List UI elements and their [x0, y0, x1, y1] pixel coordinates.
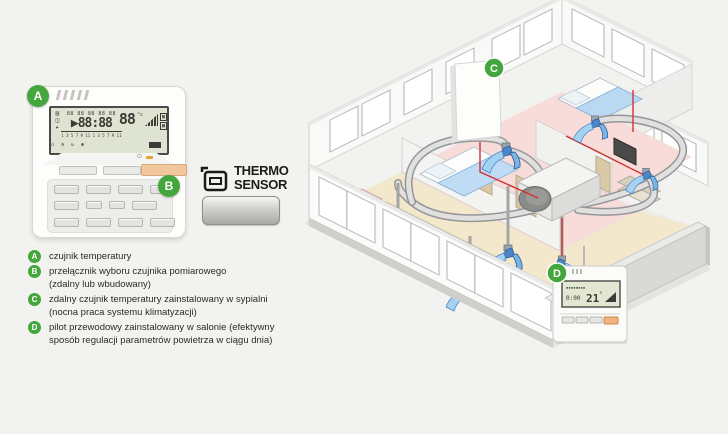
device-button — [109, 201, 125, 209]
device-button — [118, 185, 143, 194]
lcd-black-box — [149, 142, 161, 148]
lcd-temp-unit: °c — [137, 112, 143, 153]
legend-text: (zdalny lub wbudowany) — [49, 278, 226, 292]
lcd-temperature: 88 — [119, 112, 135, 153]
device-onoff-button — [141, 164, 187, 176]
device-button — [103, 166, 141, 175]
legend-text: zdalny czujnik temperatury zainstalowany… — [49, 293, 268, 307]
badge-a: A — [27, 85, 49, 107]
device-button — [59, 166, 97, 175]
lcd-mode-icon: ▩ — [160, 122, 167, 130]
device-button — [86, 185, 111, 194]
device-button — [54, 218, 79, 227]
svg-text:0:00: 0:00 — [566, 295, 581, 302]
legend: A czujnik temperatury B przełącznik wybo… — [28, 250, 328, 349]
power-led — [146, 156, 153, 159]
device-button — [118, 218, 143, 227]
device-button — [86, 218, 111, 227]
legend-text: czujnik temperatury — [49, 250, 131, 264]
lcd-mode-icon: ▦ — [160, 113, 167, 121]
controller-d-button — [562, 317, 574, 323]
lcd-mode-boxes: ▦ ▩ — [160, 113, 167, 153]
lcd-status-icons: ⌂ ◔ ↻ ✽ — [51, 142, 86, 148]
badge-c: C — [484, 58, 504, 78]
legend-badge-c: C — [28, 293, 41, 306]
lcd-icon: ▸ — [56, 125, 60, 131]
badge-d: D — [547, 263, 567, 283]
thermo-sensor-button — [132, 201, 157, 210]
device-button — [150, 218, 175, 227]
power-indicator: ⏻ — [137, 154, 153, 161]
device-button — [86, 201, 102, 209]
controller-d-power-button — [604, 317, 618, 324]
badge-b: B — [158, 175, 180, 197]
lcd-timeline: 1 3 5 7 9 11 1 3 5 7 9 11 — [61, 131, 121, 138]
legend-badge-a: A — [28, 250, 41, 263]
legend-item-a: A czujnik temperatury — [28, 250, 328, 264]
svg-text:D: D — [553, 268, 561, 280]
legend-text: przełącznik wyboru czujnika pomiarowego — [49, 265, 226, 279]
legend-text: pilot przewodowy zainstalowany w salonie… — [49, 321, 274, 335]
svg-text:°: ° — [599, 291, 603, 298]
thermo-sensor-label-line1: THERMO — [234, 164, 289, 178]
legend-item-b: B przełącznik wyboru czujnika pomiaroweg… — [28, 265, 328, 292]
svg-text:C: C — [490, 63, 498, 75]
device-button — [54, 201, 79, 210]
wired-controller-device: ▤ ◫ ▸ 88 88 88 88 88 ▶88:88 1 3 5 7 9 11… — [32, 86, 186, 238]
thermo-sensor-icon — [200, 166, 230, 194]
legend-badge-d: D — [28, 321, 41, 334]
legend-badge-b: B — [28, 265, 41, 278]
thermo-sensor-label-line2: SENSOR — [234, 178, 289, 192]
legend-item-d: D pilot przewodowy zainstalowany w salon… — [28, 321, 328, 348]
controller-d-button — [590, 317, 602, 323]
button-recess — [47, 179, 173, 233]
fan-speed-icon — [145, 114, 158, 126]
legend-text: (nocna praca systemu klimatyzacji) — [49, 306, 268, 320]
legend-item-c: C zdalny czujnik temperatury zainstalowa… — [28, 293, 328, 320]
device-button — [54, 185, 79, 194]
vent-grille — [57, 90, 88, 100]
svg-text:▪▪▪▪▪▪▪▪: ▪▪▪▪▪▪▪▪ — [566, 285, 585, 290]
thermo-sensor-physical-button — [202, 196, 280, 225]
infographic-canvas: ▪▪▪▪▪▪▪▪ 0:00 21 ° C D ▤ ◫ ▸ — [0, 0, 728, 434]
lcd-time: ▶88:88 — [71, 117, 112, 131]
legend-text: sposób regulacji parametrów powietrza w … — [49, 334, 274, 348]
svg-text:21: 21 — [586, 292, 600, 305]
controller-d-button — [576, 317, 588, 323]
